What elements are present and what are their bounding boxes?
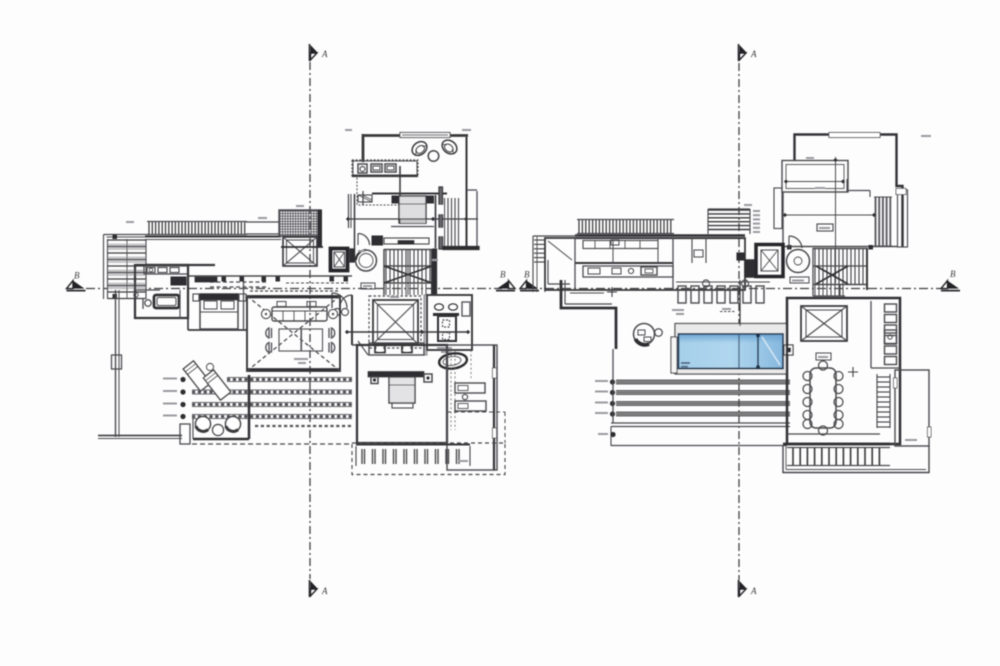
svg-text:A: A — [321, 49, 328, 59]
svg-text:A: A — [750, 586, 757, 596]
svg-text:B: B — [74, 271, 80, 281]
svg-text:B: B — [950, 269, 956, 279]
svg-text:B: B — [524, 270, 530, 280]
svg-text:A: A — [750, 49, 757, 59]
svg-text:B: B — [500, 270, 506, 280]
svg-text:A: A — [321, 586, 328, 596]
